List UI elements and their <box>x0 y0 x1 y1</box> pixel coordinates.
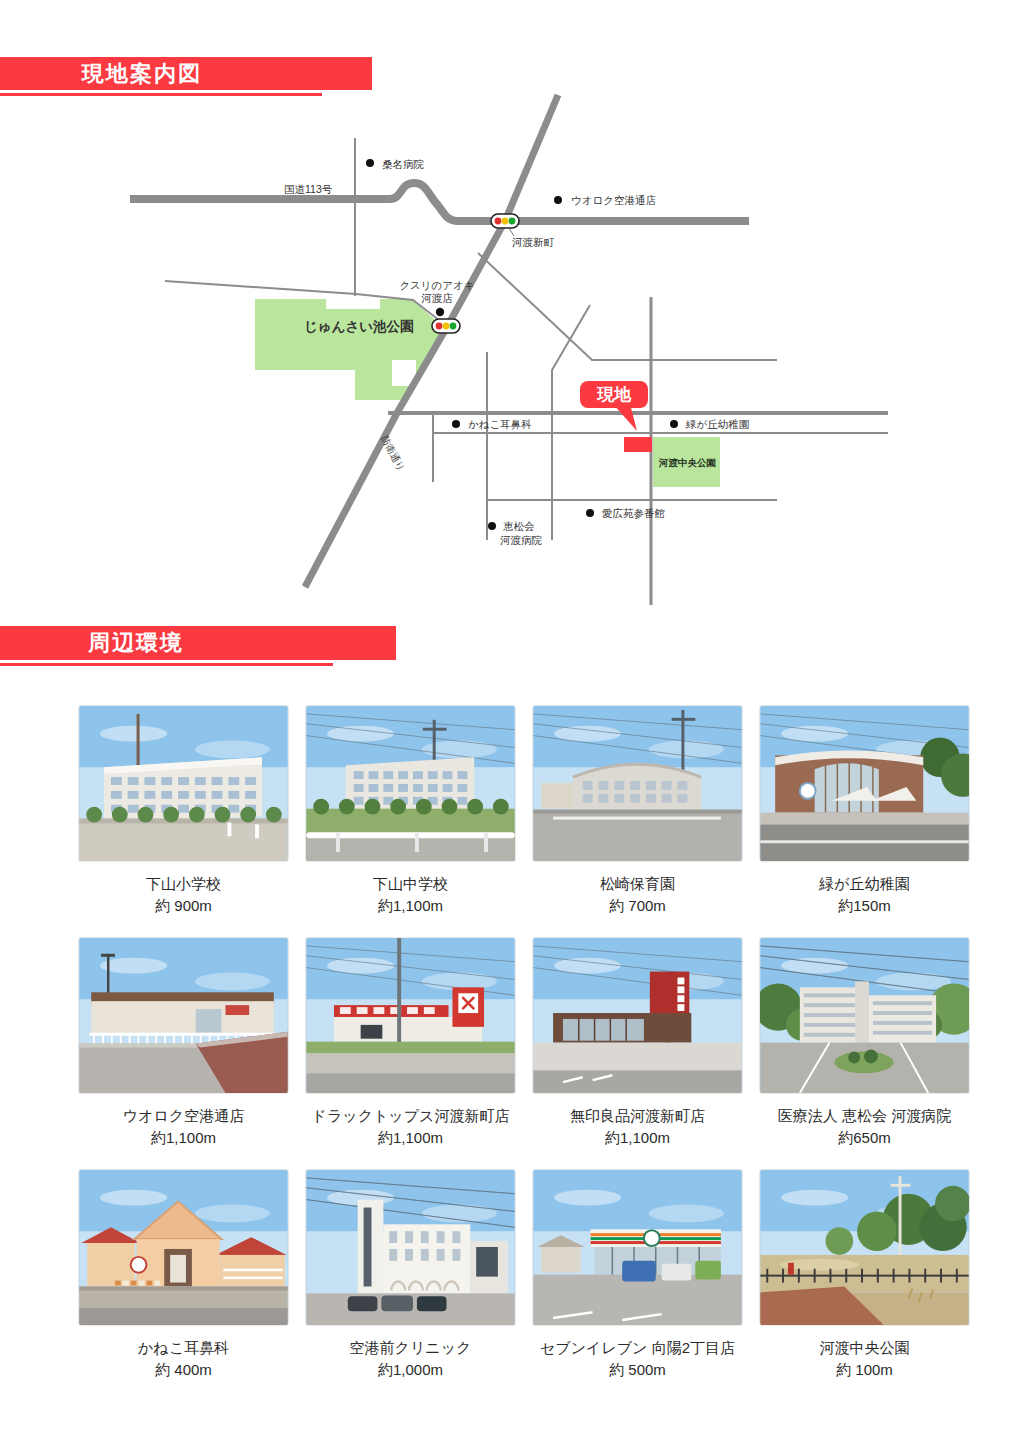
place-photo <box>305 937 516 1094</box>
place-photo <box>78 937 289 1094</box>
poi-label-kusuri-2: 河渡店 <box>421 292 453 304</box>
place-distance: 約 900m <box>78 895 289 917</box>
place-distance: 約 100m <box>759 1359 970 1381</box>
place-name: ウオロク空港通店 <box>78 1105 289 1127</box>
park-label-kowato-chuo: 河渡中央公園 <box>658 457 716 468</box>
place-card: 緑が丘幼稚園 約150m <box>759 705 970 937</box>
place-name: 無印良品河渡新町店 <box>532 1105 743 1127</box>
poi-label-keishokai-1: 恵松会 <box>503 520 535 532</box>
place-name: セブンイレブン 向陽2丁目店 <box>532 1337 743 1359</box>
place-distance: 約 400m <box>78 1359 289 1381</box>
place-photo <box>532 705 743 862</box>
place-distance: 約1,000m <box>305 1359 516 1381</box>
place-card: ウオロク空港通店 約1,100m <box>78 937 289 1169</box>
poi-label-kowato-shinmachi: 河渡新町 <box>512 236 555 248</box>
poi-label-uoroku: ウオロク空港通店 <box>571 194 656 206</box>
place-photo <box>532 937 743 1094</box>
photo-scene-conveni <box>533 1170 742 1325</box>
place-photo <box>759 937 970 1094</box>
place-name: かねこ耳鼻科 <box>78 1337 289 1359</box>
place-photo <box>759 705 970 862</box>
place-name: 緑が丘幼稚園 <box>759 873 970 895</box>
photo-scene-drugstore <box>306 938 515 1093</box>
poi-label-kuwana: 桑名病院 <box>382 158 425 170</box>
place-card: 河渡中央公園 約 100m <box>759 1169 970 1401</box>
photo-scene-muji <box>533 938 742 1093</box>
site-badge-label: 現地 <box>596 385 632 404</box>
photo-scene-park <box>760 1170 969 1325</box>
traffic-light-icon <box>432 319 460 333</box>
photo-scene-school <box>79 706 288 861</box>
place-distance: 約650m <box>759 1127 970 1149</box>
place-distance: 約1,100m <box>532 1127 743 1149</box>
place-name: ドラックトップス河渡新町店 <box>305 1105 516 1127</box>
place-distance: 約150m <box>759 895 970 917</box>
poi-label-midorigaoka: 緑が丘幼稚園 <box>685 418 749 430</box>
place-card: かねこ耳鼻科 約 400m <box>78 1169 289 1401</box>
place-name: 空港前クリニック <box>305 1337 516 1359</box>
place-name: 松崎保育園 <box>532 873 743 895</box>
place-card: 無印良品河渡新町店 約1,100m <box>532 937 743 1169</box>
place-name: 医療法人 恵松会 河渡病院 <box>759 1105 970 1127</box>
place-card: 下山中学校 約1,100m <box>305 705 516 937</box>
place-photo <box>532 1169 743 1326</box>
site-guide-map: 桑名病院 国道113号 ウオロク空港通店 河渡新町 クスリのアオキ 河渡店 じゅ… <box>0 0 1024 650</box>
photo-scene-nursery <box>533 706 742 861</box>
traffic-light-icon <box>491 214 519 228</box>
place-card: 下山小学校 約 900m <box>78 705 289 937</box>
place-photo <box>78 1169 289 1326</box>
route113-road <box>130 183 749 221</box>
place-name: 下山小学校 <box>78 873 289 895</box>
site-rect <box>624 437 652 452</box>
photo-scene-kindergarten <box>760 706 969 861</box>
photo-scene-ent <box>79 1170 288 1325</box>
site-badge-tail <box>613 404 637 431</box>
place-photo <box>78 705 289 862</box>
place-distance: 約1,100m <box>305 1127 516 1149</box>
section-banner-surroundings: 周辺環境 <box>0 626 396 660</box>
road-label-boeidori: 防衛通り <box>379 434 407 473</box>
place-card: 松崎保育園 約 700m <box>532 705 743 937</box>
place-photo <box>759 1169 970 1326</box>
place-photo <box>305 1169 516 1326</box>
surroundings-grid: 下山小学校 約 900m 下山中学校 約1,100m 松崎保育園 約 700m … <box>78 705 970 1401</box>
photo-scene-hospital <box>760 938 969 1093</box>
place-distance: 約1,100m <box>78 1127 289 1149</box>
place-card: 医療法人 恵松会 河渡病院 約650m <box>759 937 970 1169</box>
poi-label-kaneko: かねこ耳鼻科 <box>468 418 532 430</box>
road-label-route113: 国道113号 <box>284 183 333 195</box>
place-name: 下山中学校 <box>305 873 516 895</box>
poi-label-kusuri-1: クスリのアオキ <box>399 279 474 291</box>
photo-scene-school2 <box>306 706 515 861</box>
poi-label-aikoen: 愛広苑参番館 <box>602 507 665 519</box>
map-svg: 桑名病院 国道113号 ウオロク空港通店 河渡新町 クスリのアオキ 河渡店 じゅ… <box>0 0 1024 650</box>
place-card: セブンイレブン 向陽2丁目店 約 500m <box>532 1169 743 1401</box>
photo-scene-supermarket <box>79 938 288 1093</box>
place-card: ドラックトップス河渡新町店 約1,100m <box>305 937 516 1169</box>
place-distance: 約 700m <box>532 895 743 917</box>
place-distance: 約 500m <box>532 1359 743 1381</box>
photo-scene-clinic <box>306 1170 515 1325</box>
poi-label-keishokai-2: 河渡病院 <box>500 534 543 546</box>
banner-underline <box>0 663 333 666</box>
place-distance: 約1,100m <box>305 895 516 917</box>
leader-line <box>509 228 514 236</box>
park-label-junsai: じゅんさい池公園 <box>304 319 414 334</box>
place-photo <box>305 705 516 862</box>
place-name: 河渡中央公園 <box>759 1337 970 1359</box>
section-title-surroundings: 周辺環境 <box>0 628 184 658</box>
place-card: 空港前クリニック 約1,000m <box>305 1169 516 1401</box>
